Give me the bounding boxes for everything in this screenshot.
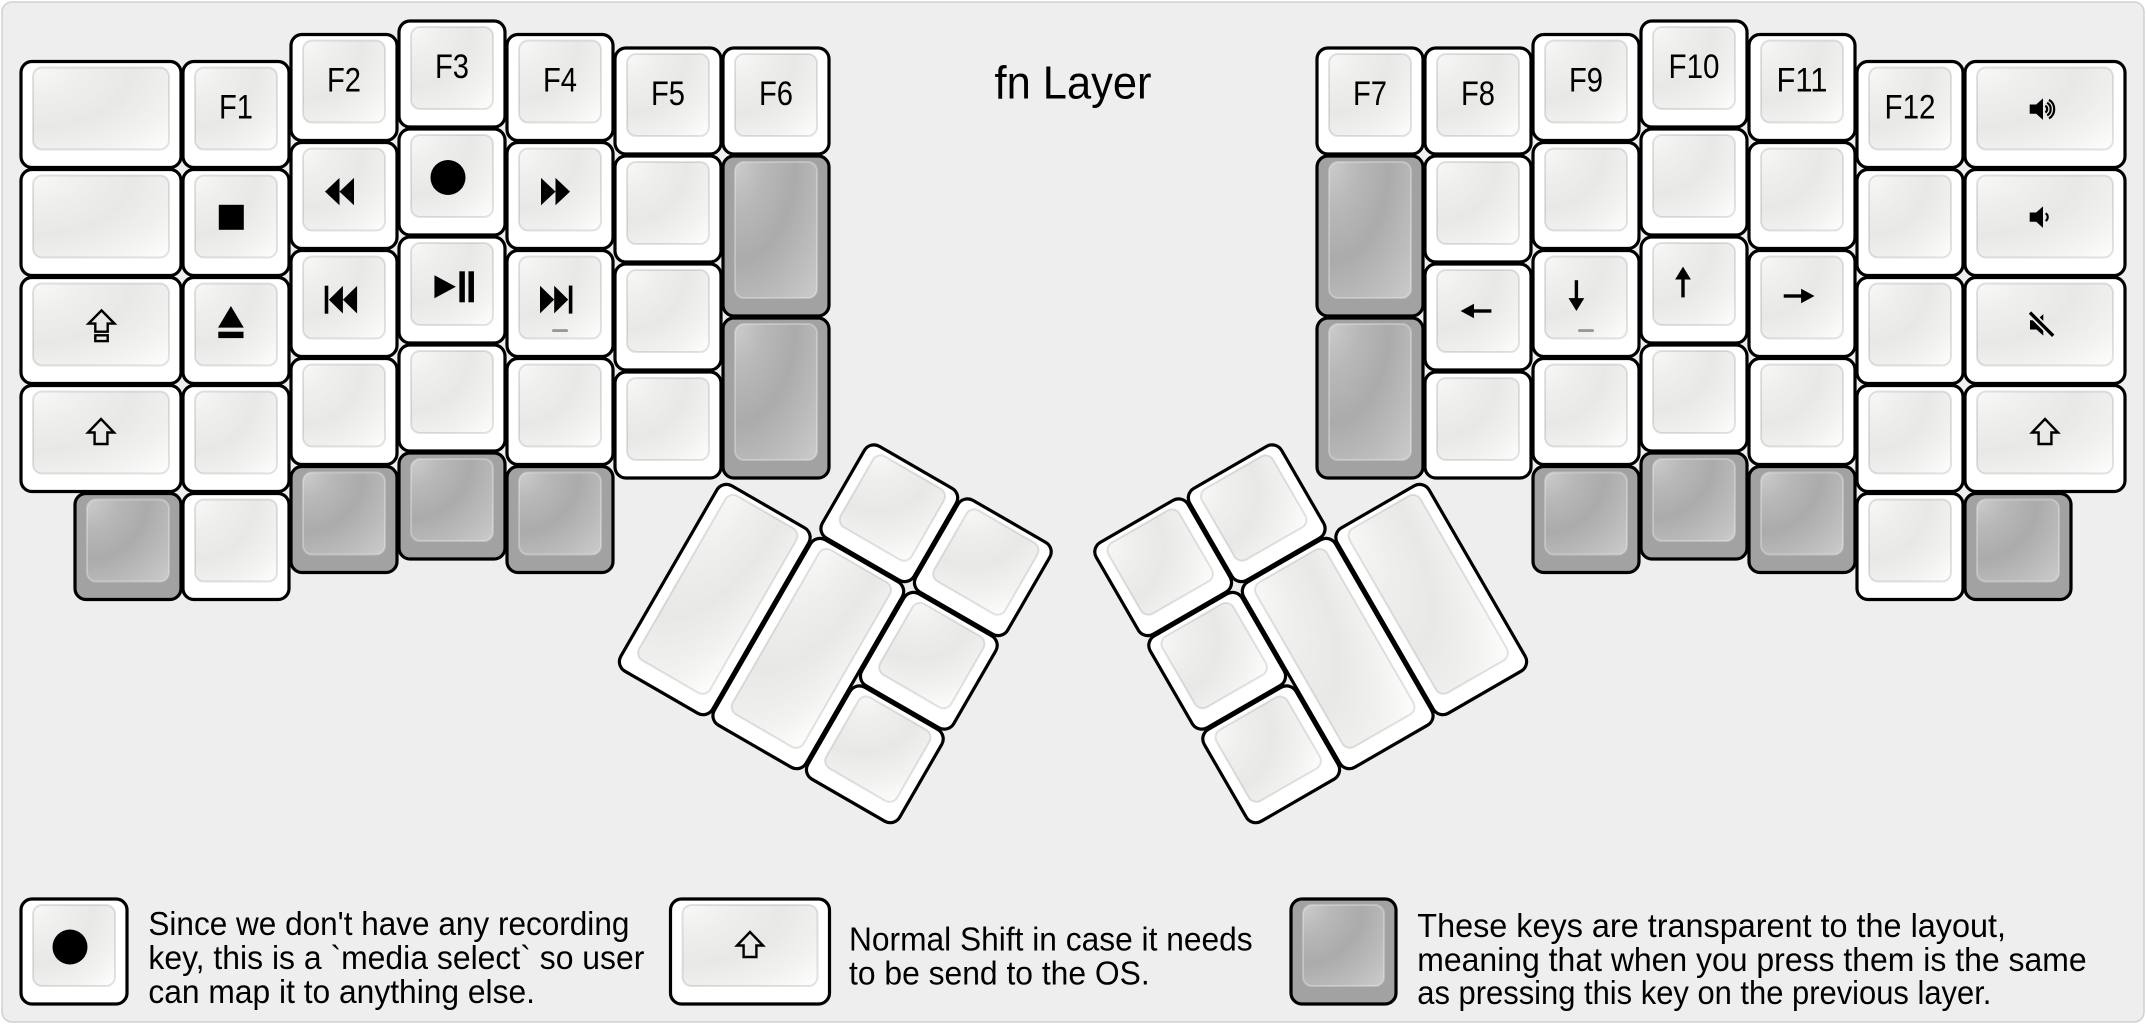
svg-text:F10: F10 [1669, 48, 1720, 86]
svg-text:meaning that when you press th: meaning that when you press them is the … [1417, 941, 2086, 978]
svg-text:F11: F11 [1777, 62, 1828, 100]
svg-text:Since we don't have any record: Since we don't have any recording [148, 905, 629, 942]
svg-text:F2: F2 [327, 62, 361, 100]
svg-text:Normal Shift in case it needs: Normal Shift in case it needs [849, 921, 1253, 958]
svg-text:as pressing this key on the pr: as pressing this key on the previous lay… [1417, 974, 1991, 1011]
svg-text:key, this is a `media select`: key, this is a `media select` so user [148, 939, 644, 976]
svg-text:F5: F5 [651, 75, 685, 113]
svg-text:F6: F6 [759, 75, 793, 113]
svg-text:F8: F8 [1461, 75, 1495, 113]
svg-text:to be send to the OS.: to be send to the OS. [849, 955, 1150, 992]
svg-text:F9: F9 [1569, 62, 1603, 100]
svg-text:F1: F1 [219, 89, 253, 127]
svg-text:F3: F3 [435, 48, 469, 86]
svg-text:These keys are transparent to: These keys are transparent to the layout… [1417, 907, 2006, 944]
svg-text:F7: F7 [1353, 75, 1387, 113]
svg-text:F4: F4 [543, 62, 577, 100]
svg-text:fn Layer: fn Layer [995, 57, 1152, 109]
svg-text:can map it to anything else.: can map it to anything else. [148, 973, 535, 1010]
svg-text:F12: F12 [1885, 89, 1936, 127]
